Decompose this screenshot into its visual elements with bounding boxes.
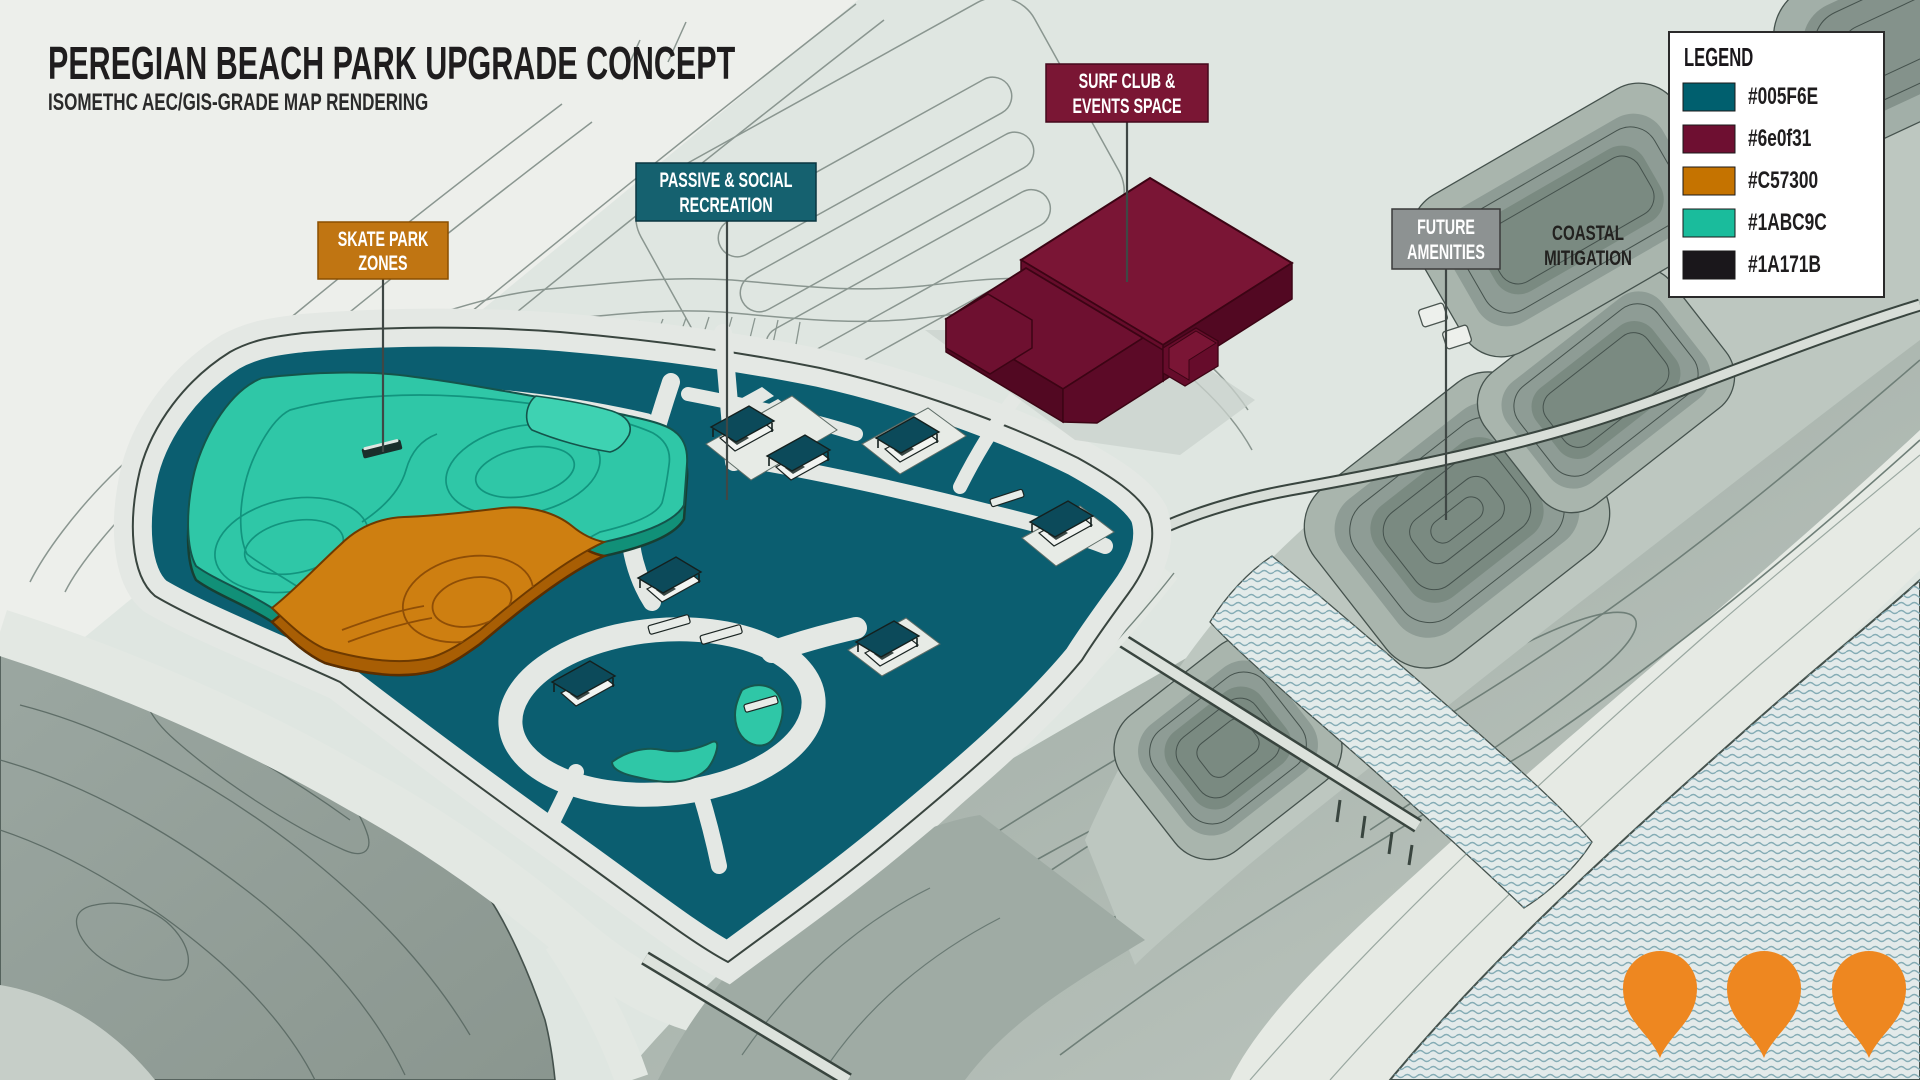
svg-text:FUTURE: FUTURE <box>1417 215 1475 238</box>
svg-text:PASSIVE & SOCIAL: PASSIVE & SOCIAL <box>660 168 793 191</box>
svg-text:#6e0f31: #6e0f31 <box>1748 125 1812 151</box>
svg-text:ISOMETHC AEC/GIS-GRADE MAP REN: ISOMETHC AEC/GIS-GRADE MAP RENDERING <box>48 89 428 116</box>
svg-text:LEGEND: LEGEND <box>1684 42 1753 72</box>
svg-text:#1ABC9C: #1ABC9C <box>1748 209 1827 235</box>
svg-text:#C57300: #C57300 <box>1748 167 1818 193</box>
svg-text:COASTAL: COASTAL <box>1552 220 1624 244</box>
svg-text:SURF CLUB &: SURF CLUB & <box>1079 69 1176 92</box>
svg-text:MITIGATION: MITIGATION <box>1544 245 1632 269</box>
svg-text:#1A171B: #1A171B <box>1748 251 1821 277</box>
svg-text:#005F6E: #005F6E <box>1748 83 1818 109</box>
svg-text:SKATE PARK: SKATE PARK <box>338 227 429 250</box>
svg-text:PEREGIAN BEACH PARK UPGRADE CO: PEREGIAN BEACH PARK UPGRADE CONCEPT <box>48 39 735 90</box>
svg-text:AMENITIES: AMENITIES <box>1407 240 1485 263</box>
svg-text:RECREATION: RECREATION <box>679 193 772 216</box>
svg-text:ZONES: ZONES <box>358 251 407 274</box>
svg-text:EVENTS SPACE: EVENTS SPACE <box>1072 94 1181 117</box>
